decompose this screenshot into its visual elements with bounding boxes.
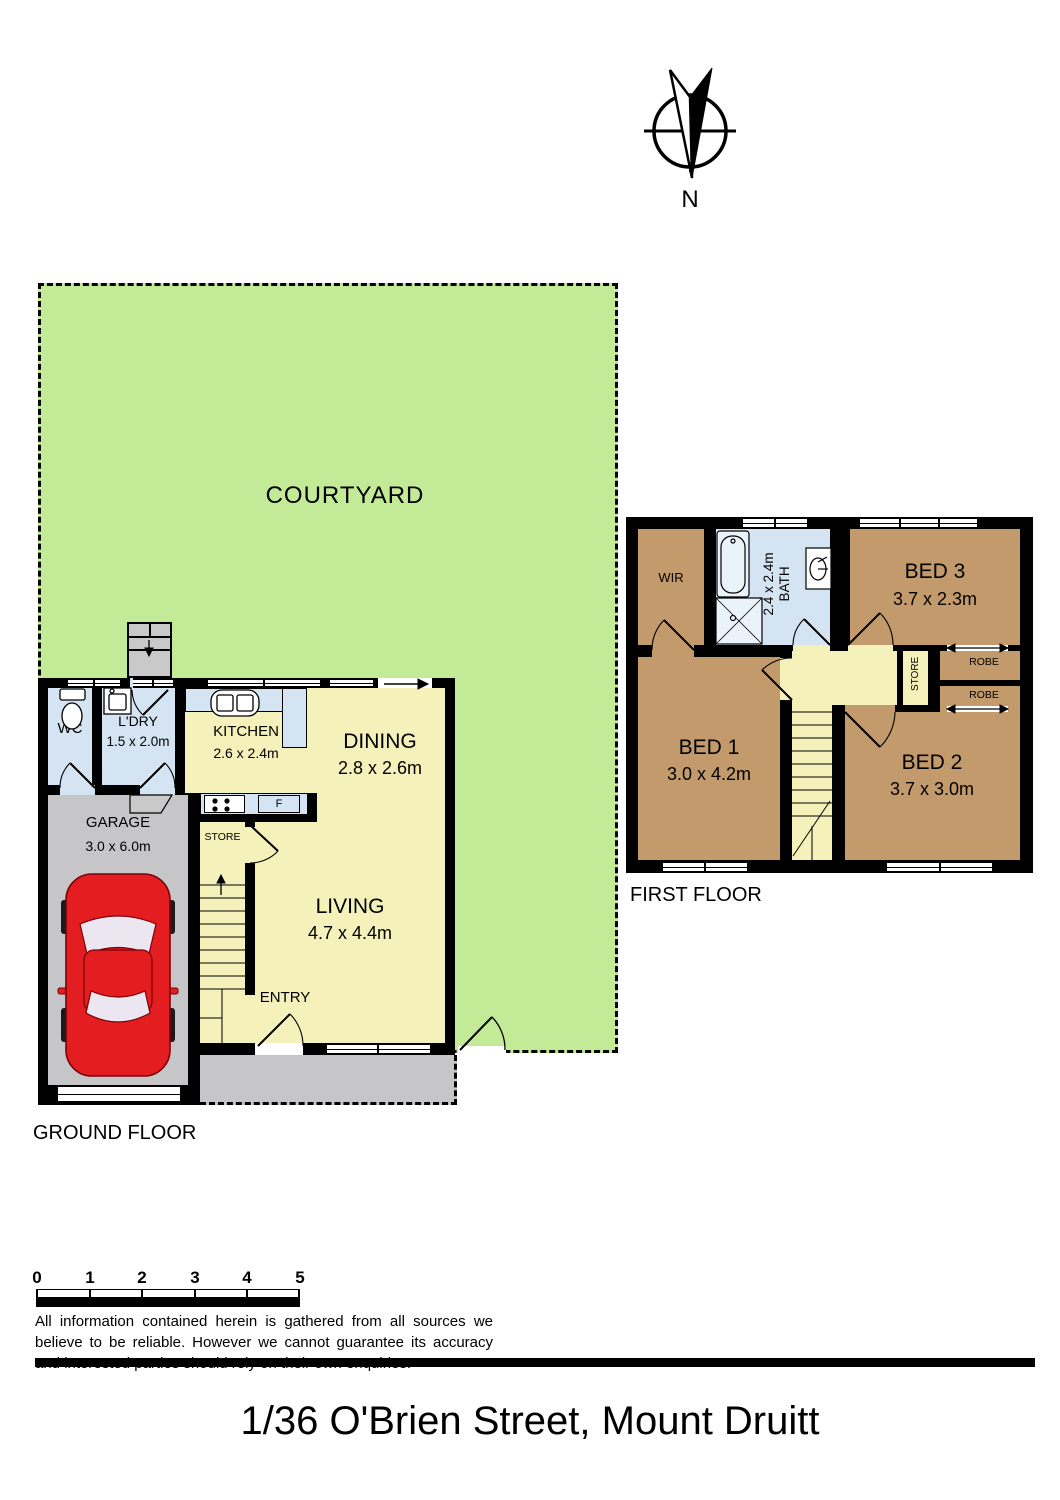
wc-label: WC xyxy=(48,720,92,738)
scale-hairline xyxy=(36,1289,300,1290)
ground-stairwell xyxy=(200,872,245,1043)
ground-floor-label: GROUND FLOOR xyxy=(33,1122,283,1146)
page-title: 1/36 O'Brien Street, Mount Druitt xyxy=(0,1398,1060,1445)
scale-bar-solid xyxy=(36,1297,300,1307)
bed3-label: BED 3 xyxy=(865,560,1005,585)
garage-dims: 3.0 x 6.0m xyxy=(48,838,188,855)
bed2-door-opening xyxy=(845,705,895,712)
living-window xyxy=(327,1043,430,1055)
scale-tick-4: 4 xyxy=(237,1268,257,1288)
laundry-dims: 1.5 x 2.0m xyxy=(100,734,176,750)
bath-dims: 2.4 x 2.4m xyxy=(761,529,777,639)
scale-tick-1: 1 xyxy=(80,1268,100,1288)
bed1-label: BED 1 xyxy=(639,736,779,761)
dining-living-connector xyxy=(317,793,445,822)
bed2-dims: 3.7 x 3.0m xyxy=(862,779,1002,800)
entry-door-opening xyxy=(255,1043,303,1055)
robe-top-label: ROBE xyxy=(944,656,1024,668)
wir-room xyxy=(638,529,704,645)
wir-label: WIR xyxy=(638,570,704,585)
scale-tickmark-5 xyxy=(298,1289,300,1297)
bed1-door-opening xyxy=(780,658,792,700)
scale-tick-2: 2 xyxy=(132,1268,152,1288)
robe-top-track xyxy=(947,645,1008,651)
dining-dims: 2.8 x 2.6m xyxy=(310,758,450,779)
porch-area xyxy=(200,1055,457,1105)
bath-door-opening xyxy=(793,645,830,651)
entry-label: ENTRY xyxy=(255,989,315,1007)
wir-door-opening xyxy=(652,645,694,657)
courtyard-gate-opening xyxy=(458,1046,506,1055)
scale-tick-3: 3 xyxy=(185,1268,205,1288)
robe-bottom-track xyxy=(947,706,1008,712)
first-stairwell xyxy=(792,705,832,860)
scale-tickmark-2 xyxy=(141,1289,143,1297)
store-room-ground xyxy=(200,822,245,872)
store-door-opening-ground xyxy=(245,827,255,863)
laundry-label: L'DRY xyxy=(100,713,176,730)
bed1-dims: 3.0 x 4.2m xyxy=(639,764,779,785)
dining-label: DINING xyxy=(310,730,450,755)
scale-tickmark-1 xyxy=(89,1289,91,1297)
external-steps-tread1 xyxy=(129,636,170,638)
kitchen-label: KITCHEN xyxy=(196,723,296,741)
garage-label: GARAGE xyxy=(48,814,188,832)
bed3-door-opening xyxy=(848,645,893,651)
living-dims: 4.7 x 4.4m xyxy=(280,923,420,944)
kitchen-dims: 2.6 x 2.4m xyxy=(196,745,296,762)
robe-bottom-label: ROBE xyxy=(944,689,1024,701)
bath-label: 2.4 x 2.4m BATH xyxy=(761,529,793,639)
floorplan-page: COURTYARD F WC L'DRY 1.5 xyxy=(0,0,1060,1500)
dining-window xyxy=(330,678,373,688)
external-steps-divider xyxy=(149,624,151,636)
first-floor-label: FIRST FLOOR xyxy=(630,884,880,908)
dining-slider-opening xyxy=(378,678,432,688)
bed1-window xyxy=(663,861,747,873)
compass-icon xyxy=(644,68,736,178)
scale-tickmark-4 xyxy=(246,1289,248,1297)
stair-entry-connector xyxy=(245,995,255,1043)
store-label-first: STORE xyxy=(910,647,922,701)
scale-tickmark-0 xyxy=(36,1289,38,1297)
living-label: LIVING xyxy=(280,895,420,920)
laundry-window xyxy=(133,678,173,688)
bed2-label: BED 2 xyxy=(862,751,1002,776)
bed3-room xyxy=(850,529,1020,645)
divider-bar xyxy=(35,1358,1035,1367)
kitchen-window xyxy=(208,678,320,688)
cooktop-box xyxy=(204,795,245,813)
external-steps-tread2 xyxy=(129,649,170,651)
courtyard-label: COURTYARD xyxy=(235,482,455,510)
garage-door xyxy=(58,1085,180,1103)
bath-name: BATH xyxy=(777,529,793,639)
wc-window xyxy=(68,678,120,688)
bed3-window xyxy=(860,517,977,529)
store-label-ground: STORE xyxy=(200,831,245,843)
first-floor-hall xyxy=(792,651,897,705)
wc-door-opening xyxy=(60,785,95,795)
laundry-garage-door-opening xyxy=(140,785,175,795)
bed2-window xyxy=(887,861,992,873)
bath-window xyxy=(743,517,807,529)
scale-tick-5: 5 xyxy=(290,1268,310,1288)
compass-n-label: N xyxy=(670,186,710,214)
bed3-dims: 3.7 x 2.3m xyxy=(865,589,1005,610)
scale-tick-0: 0 xyxy=(27,1268,47,1288)
fridge-label: F xyxy=(258,798,300,811)
scale-tickmark-3 xyxy=(194,1289,196,1297)
